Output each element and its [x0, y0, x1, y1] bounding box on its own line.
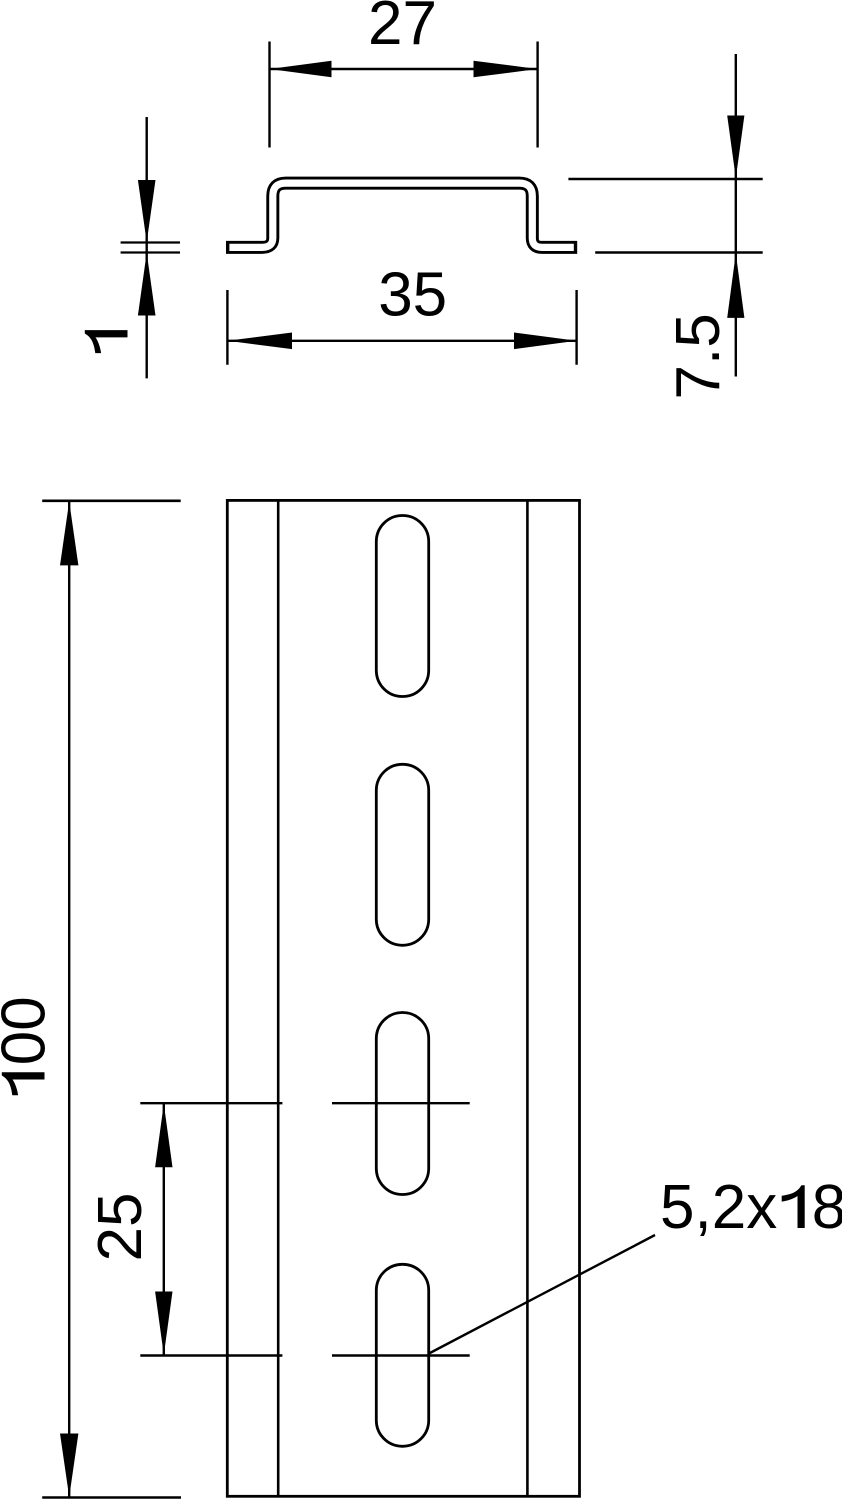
svg-text:35: 35 — [378, 261, 447, 330]
svg-text:25: 25 — [86, 1193, 155, 1262]
svg-text:27: 27 — [368, 0, 437, 58]
svg-text:5,2x: 5,2x — [660, 1173, 777, 1242]
svg-text:00: 00 — [0, 996, 59, 1065]
svg-text:8: 8 — [812, 1173, 842, 1242]
svg-text:7.5: 7.5 — [664, 313, 733, 399]
